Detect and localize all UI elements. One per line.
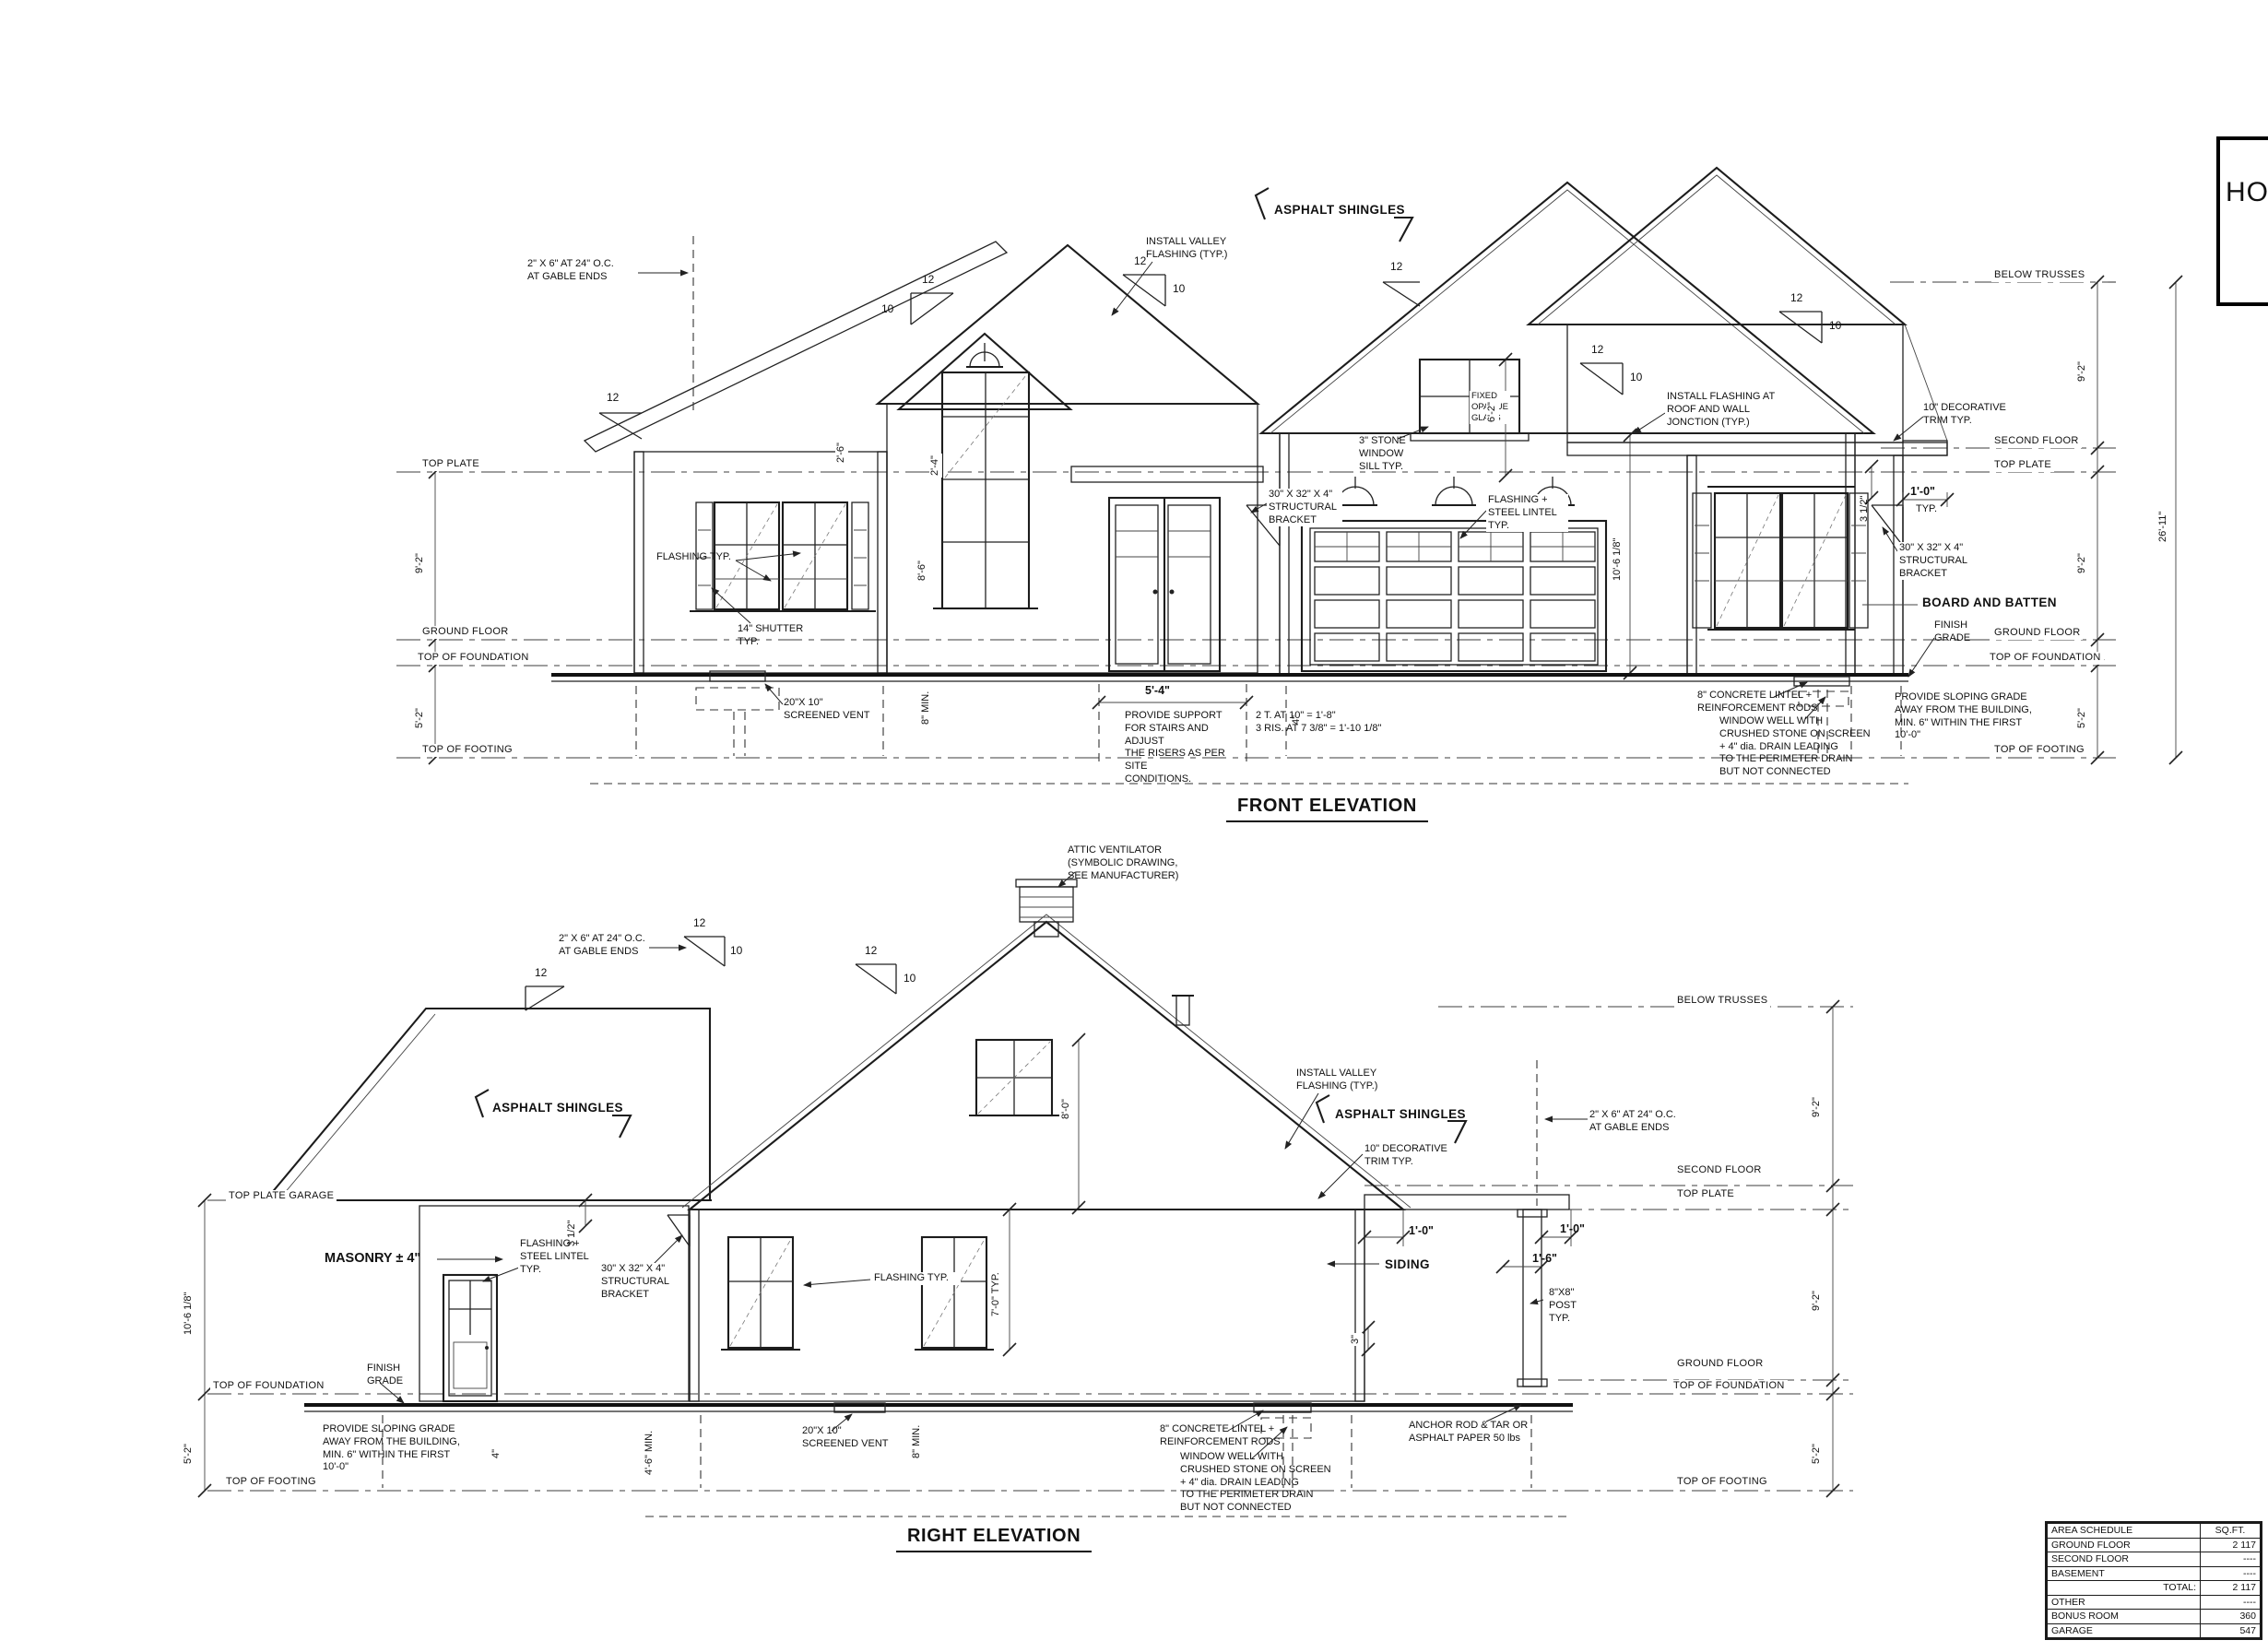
pitch-rise: 12 (1134, 254, 1146, 268)
note-post: 8"X8" POST TYP. (1547, 1287, 1597, 1325)
level-second-floor-right: SECOND FLOOR (1991, 435, 2082, 448)
pitch-rise: 12 (1591, 343, 1603, 357)
area-schedule-table: AREA SCHEDULE SQ.FT. GROUND FLOOR 2 117 … (2045, 1521, 2262, 1640)
level-top-plate-r: TOP PLATE (1674, 1188, 1737, 1201)
pitch-run: 10 (1173, 282, 1185, 296)
table-row: BASEMENT ---- (2048, 1566, 2261, 1581)
row-value: 547 (2201, 1623, 2261, 1638)
table-row: BONUS ROOM 360 (2048, 1610, 2261, 1624)
pitch-run: 10 (904, 972, 915, 985)
level-top-footing-r: TOP OF FOOTING (1674, 1476, 1770, 1489)
level-below-trusses-right: BELOW TRUSSES (1991, 269, 2087, 282)
pitch-run: 10 (1829, 319, 1841, 333)
note-gable-framing-right-left: 2" X 6" AT 24" O.C. AT GABLE ENDS (559, 933, 665, 959)
dim-1-0-porch-b: 1'-0" (1560, 1222, 1585, 1237)
note-gable-framing-right-right: 2" X 6" AT 24" O.C. AT GABLE ENDS (1589, 1109, 1695, 1135)
note-shutter: 14" SHUTTER TYP. (738, 623, 811, 649)
note-valley-flashing-right: INSTALL VALLEY FLASHING (TYP.) (1296, 1068, 1388, 1093)
dim-26-11: 26'-11" (2157, 512, 2170, 542)
level-ground-floor-r: GROUND FLOOR (1674, 1358, 1766, 1371)
note-window-well-right: WINDOW WELL WITH CRUSHED STONE ON SCREEN… (1180, 1451, 1341, 1515)
area-schedule-header: AREA SCHEDULE (2048, 1524, 2201, 1539)
level-top-plate-left: TOP PLATE (419, 458, 482, 471)
pitch-rise: 12 (1390, 260, 1402, 274)
note-bracket-right-front: 30" X 32" X 4" STRUCTURAL BRACKET (1897, 542, 1973, 580)
table-row: GARAGE 547 (2048, 1623, 2261, 1638)
right-elevation-drawing (198, 872, 1853, 1516)
table-row: OTHER ---- (2048, 1595, 2261, 1610)
pitch-run: 10 (1630, 371, 1642, 384)
dim-1-0-front: 1'-0" (1910, 485, 1935, 500)
row-label: SECOND FLOOR (2048, 1552, 2201, 1567)
note-window-well-front: WINDOW WELL WITH CRUSHED STONE ON SCREEN… (1719, 715, 1876, 779)
pitch-run: 10 (881, 302, 893, 316)
note-vent-right: 20"X 10" SCREENED VENT (802, 1425, 894, 1451)
dim-1-0-porch-a: 1'-0" (1409, 1224, 1434, 1239)
level-top-foundation-left-r: TOP OF FOUNDATION (210, 1380, 327, 1393)
note-lintel-flashing-right: FLASHING + STEEL LINTEL TYP. (518, 1238, 600, 1276)
dim-9-2-right-upper-r: 9'-2" (1811, 1097, 1824, 1117)
dim-9-2-right-lower-r: 9'-2" (1811, 1291, 1824, 1311)
note-bracket-right-elev: 30" X 32" X 4" STRUCTURAL BRACKET (599, 1263, 677, 1301)
level-ground-floor-right: GROUND FLOOR (1991, 627, 2083, 640)
level-top-footing-left: TOP OF FOOTING (419, 744, 515, 757)
note-slope-grade-front: PROVIDE SLOPING GRADE AWAY FROM THE BUIL… (1895, 691, 2047, 742)
level-top-foundation-right: TOP OF FOUNDATION (1987, 652, 2104, 665)
dim-5-2-left-r: 5'-2" (183, 1444, 195, 1464)
dim-8-min-right: 8" MIN. (911, 1425, 924, 1458)
level-top-footing-right: TOP OF FOOTING (1991, 744, 2087, 757)
dim-4-6-min: 4'-6" MIN. (644, 1431, 656, 1475)
front-elevation-title: FRONT ELEVATION (1226, 795, 1428, 822)
row-value: 2 117 (2201, 1538, 2261, 1552)
total-value: 2 117 (2201, 1581, 2261, 1596)
dim-8-min-front: 8" MIN. (920, 691, 933, 725)
note-anchor-rod: ANCHOR ROD & TAR OR ASPHALT PAPER 50 lbs (1409, 1420, 1547, 1445)
pitch-rise: 12 (865, 944, 877, 958)
note-flashing-right: FLASHING TYP. (872, 1272, 961, 1285)
title-block-text: HO (2226, 177, 2268, 207)
row-value: ---- (2201, 1595, 2261, 1610)
note-concrete-lintel-front: 8" CONCRETE LINTEL + REINFORCEMENT RODS (1697, 690, 1826, 715)
dim-typ-front: TYP. (1916, 503, 1937, 516)
pitch-rise: 12 (693, 916, 705, 930)
note-roof-wall-flashing: INSTALL FLASHING AT ROOF AND WALL JONCTI… (1665, 391, 1778, 429)
dim-9-2-right-lower: 9'-2" (2076, 553, 2089, 573)
dim-5-2-right-r: 5'-2" (1811, 1444, 1824, 1464)
level-top-foundation-r: TOP OF FOUNDATION (1671, 1380, 1788, 1393)
note-asphalt-shingles-garage: ASPHALT SHINGLES (492, 1101, 623, 1116)
sqft-header: SQ.FT. (2201, 1524, 2261, 1539)
level-second-floor-r: SECOND FLOOR (1674, 1164, 1765, 1177)
level-top-foundation-left: TOP OF FOUNDATION (415, 652, 532, 665)
row-label: GARAGE (2048, 1623, 2201, 1638)
note-vent-front: 20"X 10" SCREENED VENT (784, 697, 876, 723)
note-valley-flashing-front: INSTALL VALLEY FLASHING (TYP.) (1146, 236, 1238, 262)
row-label: GROUND FLOOR (2048, 1538, 2201, 1552)
dim-5-2-left: 5'-2" (414, 708, 427, 728)
note-bracket-left-front: 30" X 32" X 4" STRUCTURAL BRACKET (1267, 489, 1342, 526)
note-stone-sill: 3" STONE WINDOW SILL TYP. (1359, 435, 1451, 473)
dim-8-6: 8'-6" (916, 559, 929, 583)
title-block-fragment: HO (2216, 136, 2268, 306)
dim-4-front: 4" (1291, 715, 1304, 725)
note-gable-framing-front: 2" X 6" AT 24" O.C. AT GABLE ENDS (527, 258, 633, 284)
right-elevation-title: RIGHT ELEVATION (896, 1525, 1092, 1552)
table-row: GROUND FLOOR 2 117 (2048, 1538, 2261, 1552)
level-top-plate-garage: TOP PLATE GARAGE (226, 1190, 337, 1203)
dim-8-0: 8'-0" (1060, 1097, 1073, 1121)
note-attic-ventilator: ATTIC VENTILATOR (SYMBOLIC DRAWING, SEE … (1068, 844, 1197, 882)
row-label: OTHER (2048, 1595, 2201, 1610)
note-lintel-flashing-front: FLASHING + STEEL LINTEL TYP. (1486, 494, 1568, 532)
dim-10-6-front: 10'-6 1/8" (1612, 537, 1624, 583)
note-board-and-batten: BOARD AND BATTEN (1922, 596, 2057, 611)
dim-4-right: 4" (490, 1449, 503, 1458)
dim-7-0-typ: 7'-0" TYP. (990, 1270, 1003, 1318)
dim-2-4: 2'-4" (929, 454, 942, 478)
row-value: ---- (2201, 1566, 2261, 1581)
note-decorative-trim-front: 10" DECORATIVE TRIM TYP. (1923, 402, 2011, 428)
row-value: ---- (2201, 1552, 2261, 1567)
total-label: TOTAL: (2048, 1581, 2201, 1596)
note-finish-grade-right: FINISH GRADE (367, 1363, 418, 1388)
dim-6-2: 6'-2" (1486, 400, 1499, 424)
note-finish-grade-front: FINISH GRADE (1934, 619, 1985, 645)
row-label: BASEMENT (2048, 1566, 2201, 1581)
level-ground-floor-left: GROUND FLOOR (419, 626, 511, 639)
dim-9-2-right-upper: 9'-2" (2076, 361, 2089, 382)
dim-5-2-right: 5'-2" (2076, 708, 2089, 728)
note-concrete-lintel-right: 8" CONCRETE LINTEL + REINFORCEMENT RODS (1160, 1423, 1293, 1449)
dim-5-4: 5'-4" (1145, 684, 1170, 699)
pitch-rise: 12 (922, 273, 934, 287)
note-masonry: MASONRY ± 4" (325, 1250, 420, 1267)
note-siding: SIDING (1383, 1257, 1432, 1273)
pitch-run: 10 (730, 944, 742, 958)
elevation-linework: .s{stroke:#222;fill:none;stroke-width:1.… (0, 0, 2268, 1652)
note-decorative-trim-right: 10" DECORATIVE TRIM TYP. (1364, 1143, 1452, 1169)
pitch-rise: 12 (607, 391, 619, 405)
level-below-trusses-r: BELOW TRUSSES (1674, 995, 1770, 1008)
dim-3-half-right: 3 1/2" (566, 1221, 579, 1246)
dim-1-6-porch: 1'-6" (1532, 1252, 1557, 1267)
level-top-footing-left-r: TOP OF FOOTING (223, 1476, 319, 1489)
pitch-rise: 12 (1790, 291, 1802, 305)
note-asphalt-shingles-main: ASPHALT SHINGLES (1335, 1107, 1466, 1123)
dim-3-half-front: 3 1/2" (1859, 496, 1872, 522)
row-value: 360 (2201, 1610, 2261, 1624)
dim-2-6: 2'-6" (835, 441, 848, 465)
note-slope-grade-right: PROVIDE SLOPING GRADE AWAY FROM THE BUIL… (323, 1423, 475, 1474)
table-row-total: TOTAL: 2 117 (2048, 1581, 2261, 1596)
row-label: BONUS ROOM (2048, 1610, 2201, 1624)
note-flashing-front: FLASHING TYP. (656, 551, 739, 564)
table-row: SECOND FLOOR ---- (2048, 1552, 2261, 1567)
level-top-plate-right: TOP PLATE (1991, 459, 2054, 472)
note-asphalt-shingles-front: ASPHALT SHINGLES (1274, 203, 1405, 218)
dim-3: 3" (1350, 1333, 1363, 1346)
dim-9-2-left: 9'-2" (414, 553, 427, 573)
dim-10-6-right-elev: 10'-6 1/8" (183, 1292, 195, 1335)
drawing-sheet: .s{stroke:#222;fill:none;stroke-width:1.… (0, 0, 2268, 1652)
note-stair-support: PROVIDE SUPPORT FOR STAIRS AND ADJUST TH… (1125, 710, 1249, 786)
pitch-rise: 12 (535, 966, 547, 980)
note-stair-calc: 2 T. AT 10" = 1'-8" 3 RIS. AT 7 3/8" = 1… (1256, 710, 1417, 736)
table-header-row: AREA SCHEDULE SQ.FT. (2048, 1524, 2261, 1539)
